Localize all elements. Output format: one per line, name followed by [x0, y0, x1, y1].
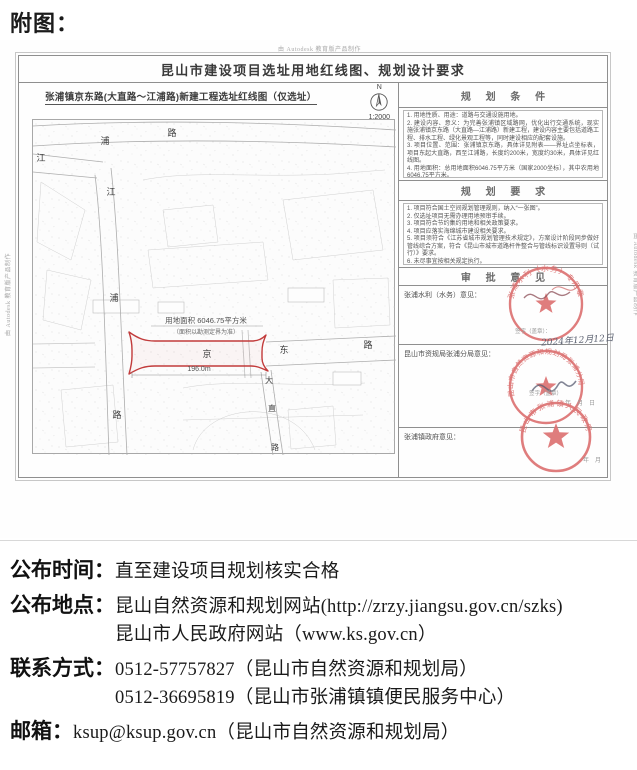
north-arrow: N 1:2000: [369, 84, 390, 122]
section-divider: [0, 540, 637, 541]
requirements-header: 规 划 要 求: [399, 181, 607, 201]
condition-item: 1. 用地性质、用途：道路与交通设施用地。: [407, 113, 599, 121]
publish-place-line2: 昆山市人民政府网站（www.ks.gov.cn）: [115, 621, 563, 649]
approval-label: 昆山市资规局张浦分局意见：: [404, 349, 495, 359]
autodesk-watermark-right: 由 Autodesk 教育版产品制作: [632, 233, 637, 316]
map-panel: 张浦镇京东路(大直路～江浦路)新建工程选址红线图（仅选址） N 1:2000: [19, 83, 399, 477]
north-label: N: [369, 84, 390, 92]
svg-text:路: 路: [167, 127, 176, 138]
requirement-item: 3. 项目符合节约集约用地和相关政策要求。: [407, 221, 599, 229]
publish-place-line1: 昆山自然资源和规划网站(http://zrzy.jiangsu.gov.cn/s…: [115, 593, 563, 621]
contact-row: 联系方式： 0512-57757827（昆山市自然资源和规划局） 0512-36…: [10, 654, 630, 712]
parcel-area-note: （面积以勘测定界为准）: [173, 328, 239, 336]
approval-label: 张浦镇政府意见：: [404, 432, 460, 442]
requirement-item: 5. 项目须符合《江苏省城市规划管理技术规定》，方案设计阶段同步做好管线综合方案…: [407, 236, 599, 259]
svg-text:江: 江: [36, 153, 45, 163]
attachment-label: 附图：: [10, 6, 79, 38]
condition-item: 3. 项目位置、范围：张浦镇京东路，具体详见附表——界址点坐标表，项目东起大直路…: [407, 143, 599, 166]
page: 附图： 由 Autodesk 教育版产品制作 由 Autodesk 教育版产品制…: [0, 0, 637, 770]
condition-item: 2. 建设内容、意义：为完善张浦镇区域路网，优化出行交通系统，现实施张浦镇京东路…: [407, 121, 599, 144]
svg-text:东: 东: [279, 344, 288, 355]
svg-text:大: 大: [265, 375, 273, 385]
condition-item: 4. 用地面积：总用地面积6046.75平方米（国家2000坐标），其中农用地6…: [407, 166, 599, 179]
red-seal-town-government: 昆山市张浦镇人民政府: [517, 398, 595, 476]
approval-label: 张浦水利（水务）意见：: [404, 290, 481, 300]
svg-text:路: 路: [271, 442, 279, 452]
conditions-body: 1. 用地性质、用途：道路与交通设施用地。 2. 建设内容、意义：为完善张浦镇区…: [399, 108, 607, 181]
sign-hint: 签字（盖章）：: [515, 327, 551, 335]
conditions-header: 规 划 条 件: [399, 83, 607, 108]
announcement-info: 公布时间： 直至建设项目规划核实合格 公布地点： 昆山自然资源和规划网站(htt…: [10, 556, 630, 752]
email-value: ksup@ksup.gov.cn（昆山市自然资源和规划局）: [73, 723, 460, 743]
requirement-item: 1. 项目符合国土空间规划管理规则，纳入“一张图”。: [407, 206, 599, 214]
parcel-dimension-label: 196.0m: [187, 366, 211, 373]
map-title: 张浦镇京东路(大直路～江浦路)新建工程选址红线图（仅选址）: [45, 89, 317, 105]
svg-text:直: 直: [268, 403, 276, 413]
publish-time-value: 直至建设项目规划核实合格: [115, 562, 339, 582]
publish-place-row: 公布地点： 昆山自然资源和规划网站(http://zrzy.jiangsu.go…: [10, 591, 630, 649]
map-box: 用地面积 6046.75平方米 （面积以勘测定界为准） 196.0m: [32, 119, 395, 454]
compass-icon: [369, 92, 389, 112]
contact-line2: 0512-36695819（昆山市张浦镇镇便民服务中心）: [115, 684, 515, 712]
autodesk-watermark-left: 由 Autodesk 教育版产品制作: [3, 253, 12, 336]
requirement-item: 4. 项目应落实海绵城市建设相关要求。: [407, 229, 599, 237]
date-placeholder: 年 月: [583, 455, 601, 464]
svg-text:江: 江: [106, 187, 115, 197]
email-label: 邮箱：: [10, 717, 73, 747]
svg-text:浦: 浦: [109, 292, 118, 303]
document-frame: 昆山市建设项目选址用地红线图、规划设计要求 张浦镇京东路(大直路～江浦路)新建工…: [18, 55, 608, 478]
parcel-area-label: 用地面积 6046.75平方米: [165, 315, 247, 325]
svg-text:路: 路: [363, 339, 372, 350]
publish-time-row: 公布时间： 直至建设项目规划核实合格: [10, 556, 630, 586]
requirements-body: 1. 项目符合国土空间规划管理规则，纳入“一张图”。 2. 仅选址项目无需办理用…: [399, 201, 607, 268]
requirements-column: 规 划 条 件 1. 用地性质、用途：道路与交通设施用地。 2. 建设内容、意义…: [399, 83, 607, 477]
requirement-item: 2. 仅选址项目无需办理用地预审手续。: [407, 214, 599, 222]
svg-text:路: 路: [112, 409, 121, 420]
scanned-redline-drawing: 由 Autodesk 教育版产品制作 由 Autodesk 教育版产品制作 由 …: [0, 40, 637, 538]
contact-label: 联系方式：: [10, 654, 115, 712]
publish-time-label: 公布时间：: [10, 556, 115, 586]
svg-text:京: 京: [202, 348, 211, 359]
autodesk-watermark-top: 由 Autodesk 教育版产品制作: [278, 44, 361, 53]
svg-text:浦: 浦: [100, 135, 109, 146]
document-title: 昆山市建设项目选址用地红线图、规划设计要求: [19, 56, 607, 83]
site-map: 用地面积 6046.75平方米 （面积以勘测定界为准） 196.0m: [33, 120, 396, 455]
contact-line1: 0512-57757827（昆山市自然资源和规划局）: [115, 656, 515, 684]
sign-hint: 签字（盖章）: [529, 389, 562, 397]
publish-place-label: 公布地点：: [10, 591, 115, 649]
email-row: 邮箱： ksup@ksup.gov.cn（昆山市自然资源和规划局）: [10, 717, 630, 747]
